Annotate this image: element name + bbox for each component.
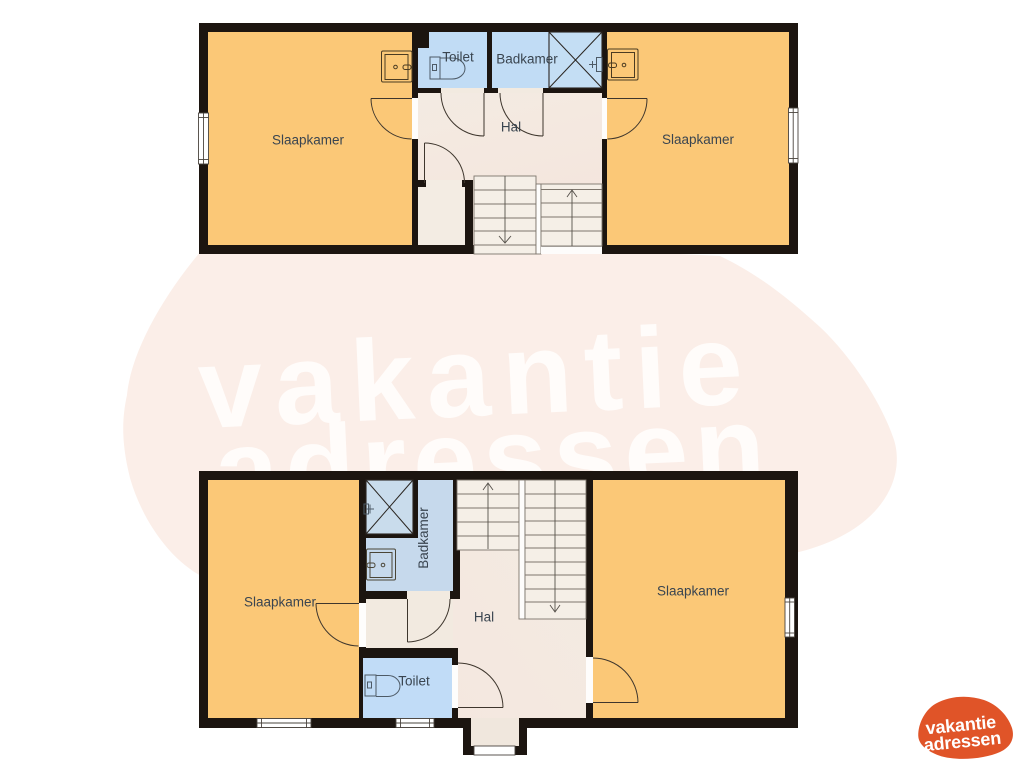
svg-text:Slaapkamer: Slaapkamer xyxy=(657,584,730,599)
svg-text:Toilet: Toilet xyxy=(398,674,430,689)
svg-text:Hal: Hal xyxy=(474,610,494,625)
svg-text:Slaapkamer: Slaapkamer xyxy=(662,132,735,147)
svg-text:Badkamer: Badkamer xyxy=(496,52,558,67)
svg-text:Hal: Hal xyxy=(501,120,521,135)
svg-text:Badkamer: Badkamer xyxy=(416,507,431,569)
svg-text:Slaapkamer: Slaapkamer xyxy=(244,595,317,610)
svg-text:Toilet: Toilet xyxy=(442,50,474,65)
svg-text:Slaapkamer: Slaapkamer xyxy=(272,133,345,148)
